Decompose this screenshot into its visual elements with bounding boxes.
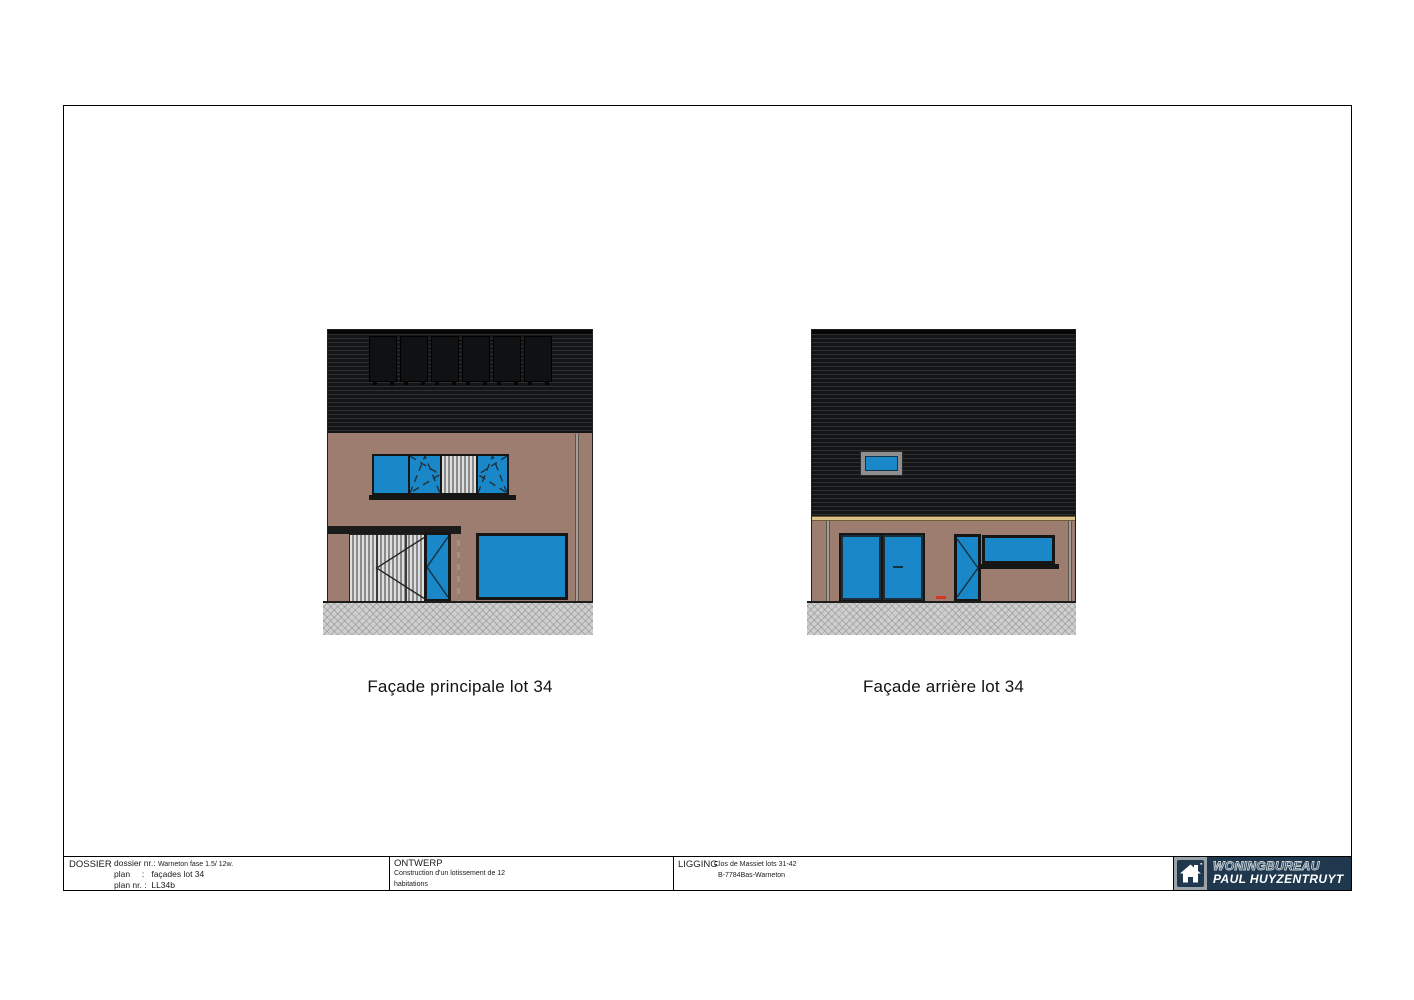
ontwerp-line1: Construction d'un lotissement de 12 <box>394 870 505 877</box>
drawing-sheet: Façade principale lot 34 Façade arrière … <box>0 0 1414 1000</box>
fixed-window <box>372 454 410 495</box>
door-swing-symbol <box>427 535 448 599</box>
solar-panel <box>400 336 428 382</box>
dossier-rows: dossier nr.: Warneton fase 1.5/ 12w. pla… <box>114 858 233 891</box>
dossier-number-row: dossier nr.: Warneton fase 1.5/ 12w. <box>114 858 233 869</box>
front-dark-cladding <box>328 330 592 433</box>
solar-panel <box>493 336 521 382</box>
rear-downspout-right <box>1068 521 1072 602</box>
dossier-number-value: Warneton fase 1.5/ 12w. <box>158 861 233 868</box>
front-upper-window-band <box>372 454 513 495</box>
rear-dark-cladding <box>812 330 1075 516</box>
sliding-door-handle <box>893 566 903 568</box>
title-block-ontwerp-cell: ONTWERP Construction d'un lotissement de… <box>389 857 673 890</box>
ligging-line2: B-7784Bas-Warneton <box>718 872 785 879</box>
solar-panel <box>431 336 459 382</box>
sliding-direction-symbol <box>350 535 424 601</box>
rear-sidewalk <box>807 601 1076 635</box>
ontwerp-line2: habitations <box>394 881 428 888</box>
plan-value: façades lot 34 <box>151 869 204 879</box>
front-downspout <box>575 434 579 602</box>
title-block: DOSSIER dossier nr.: Warneton fase 1.5/ … <box>64 856 1351 890</box>
tilt-turn-symbol <box>478 456 507 493</box>
tilt-turn-window <box>476 454 509 495</box>
dossier-number-label: dossier nr.: <box>114 858 158 868</box>
ligging-section-label: LIGGING <box>678 859 718 870</box>
rear-window-sill <box>981 564 1059 569</box>
utility-marker <box>936 596 946 599</box>
canopy-post-line <box>457 534 460 602</box>
sliding-door-pane-right <box>883 535 923 600</box>
house-icon-glyph <box>1177 860 1204 887</box>
logo-text: WONINGBUREAU PAUL HUYZENTRUYT <box>1213 860 1344 886</box>
tilt-turn-window <box>410 454 442 495</box>
solar-panel <box>524 336 552 382</box>
rear-wide-window <box>982 535 1055 564</box>
rear-facade-drawing <box>811 329 1076 635</box>
rear-attic-window <box>860 451 903 476</box>
solar-panel <box>369 336 397 382</box>
logo-house-tile <box>1174 857 1207 890</box>
front-picture-window <box>476 533 568 600</box>
rear-downspout-left <box>826 521 830 602</box>
door-swing-symbol <box>957 537 978 599</box>
sliding-glass-door <box>839 533 925 602</box>
house-icon <box>1177 860 1204 887</box>
tilt-turn-symbol <box>410 456 440 493</box>
garage-slatted-door <box>349 534 425 602</box>
sheet-border-frame: Façade principale lot 34 Façade arrière … <box>63 105 1352 891</box>
rear-attic-window-glass <box>865 456 898 471</box>
rear-facade-building <box>811 329 1076 601</box>
louvered-screen <box>442 454 476 495</box>
solar-panel-array <box>369 336 552 382</box>
solar-panel <box>462 336 490 382</box>
title-block-dossier-cell: DOSSIER dossier nr.: Warneton fase 1.5/ … <box>64 857 389 890</box>
plan-row: plan : façades lot 34 <box>114 869 233 880</box>
plan-number-label: plan nr. : <box>114 880 151 890</box>
front-sidewalk <box>323 601 593 635</box>
rear-roof-edge <box>812 330 1075 334</box>
title-block-ligging-cell: LIGGING Clos de Massiet lots 31-42 B-778… <box>673 857 1173 890</box>
front-facade-caption: Façade principale lot 34 <box>327 677 593 697</box>
company-logo: WONINGBUREAU PAUL HUYZENTRUYT <box>1173 857 1351 890</box>
front-roof-edge <box>328 330 592 334</box>
rear-facade-caption: Façade arrière lot 34 <box>811 677 1076 697</box>
front-window-sill <box>369 495 516 500</box>
plan-number-row: plan nr. : LL34b <box>114 880 233 891</box>
front-facade-building <box>327 329 593 601</box>
dossier-section-label: DOSSIER <box>69 859 112 870</box>
logo-company-line2: PAUL HUYZENTRUYT <box>1213 873 1344 886</box>
ontwerp-section-label: ONTWERP <box>394 858 443 869</box>
ligging-line1: Clos de Massiet lots 31-42 <box>714 861 796 868</box>
front-entry-door <box>424 532 451 602</box>
sliding-door-pane-left <box>841 535 881 600</box>
plan-label: plan : <box>114 869 151 879</box>
rear-entry-door <box>954 534 981 602</box>
front-facade-drawing <box>327 329 593 635</box>
plan-number-value: LL34b <box>151 880 175 890</box>
